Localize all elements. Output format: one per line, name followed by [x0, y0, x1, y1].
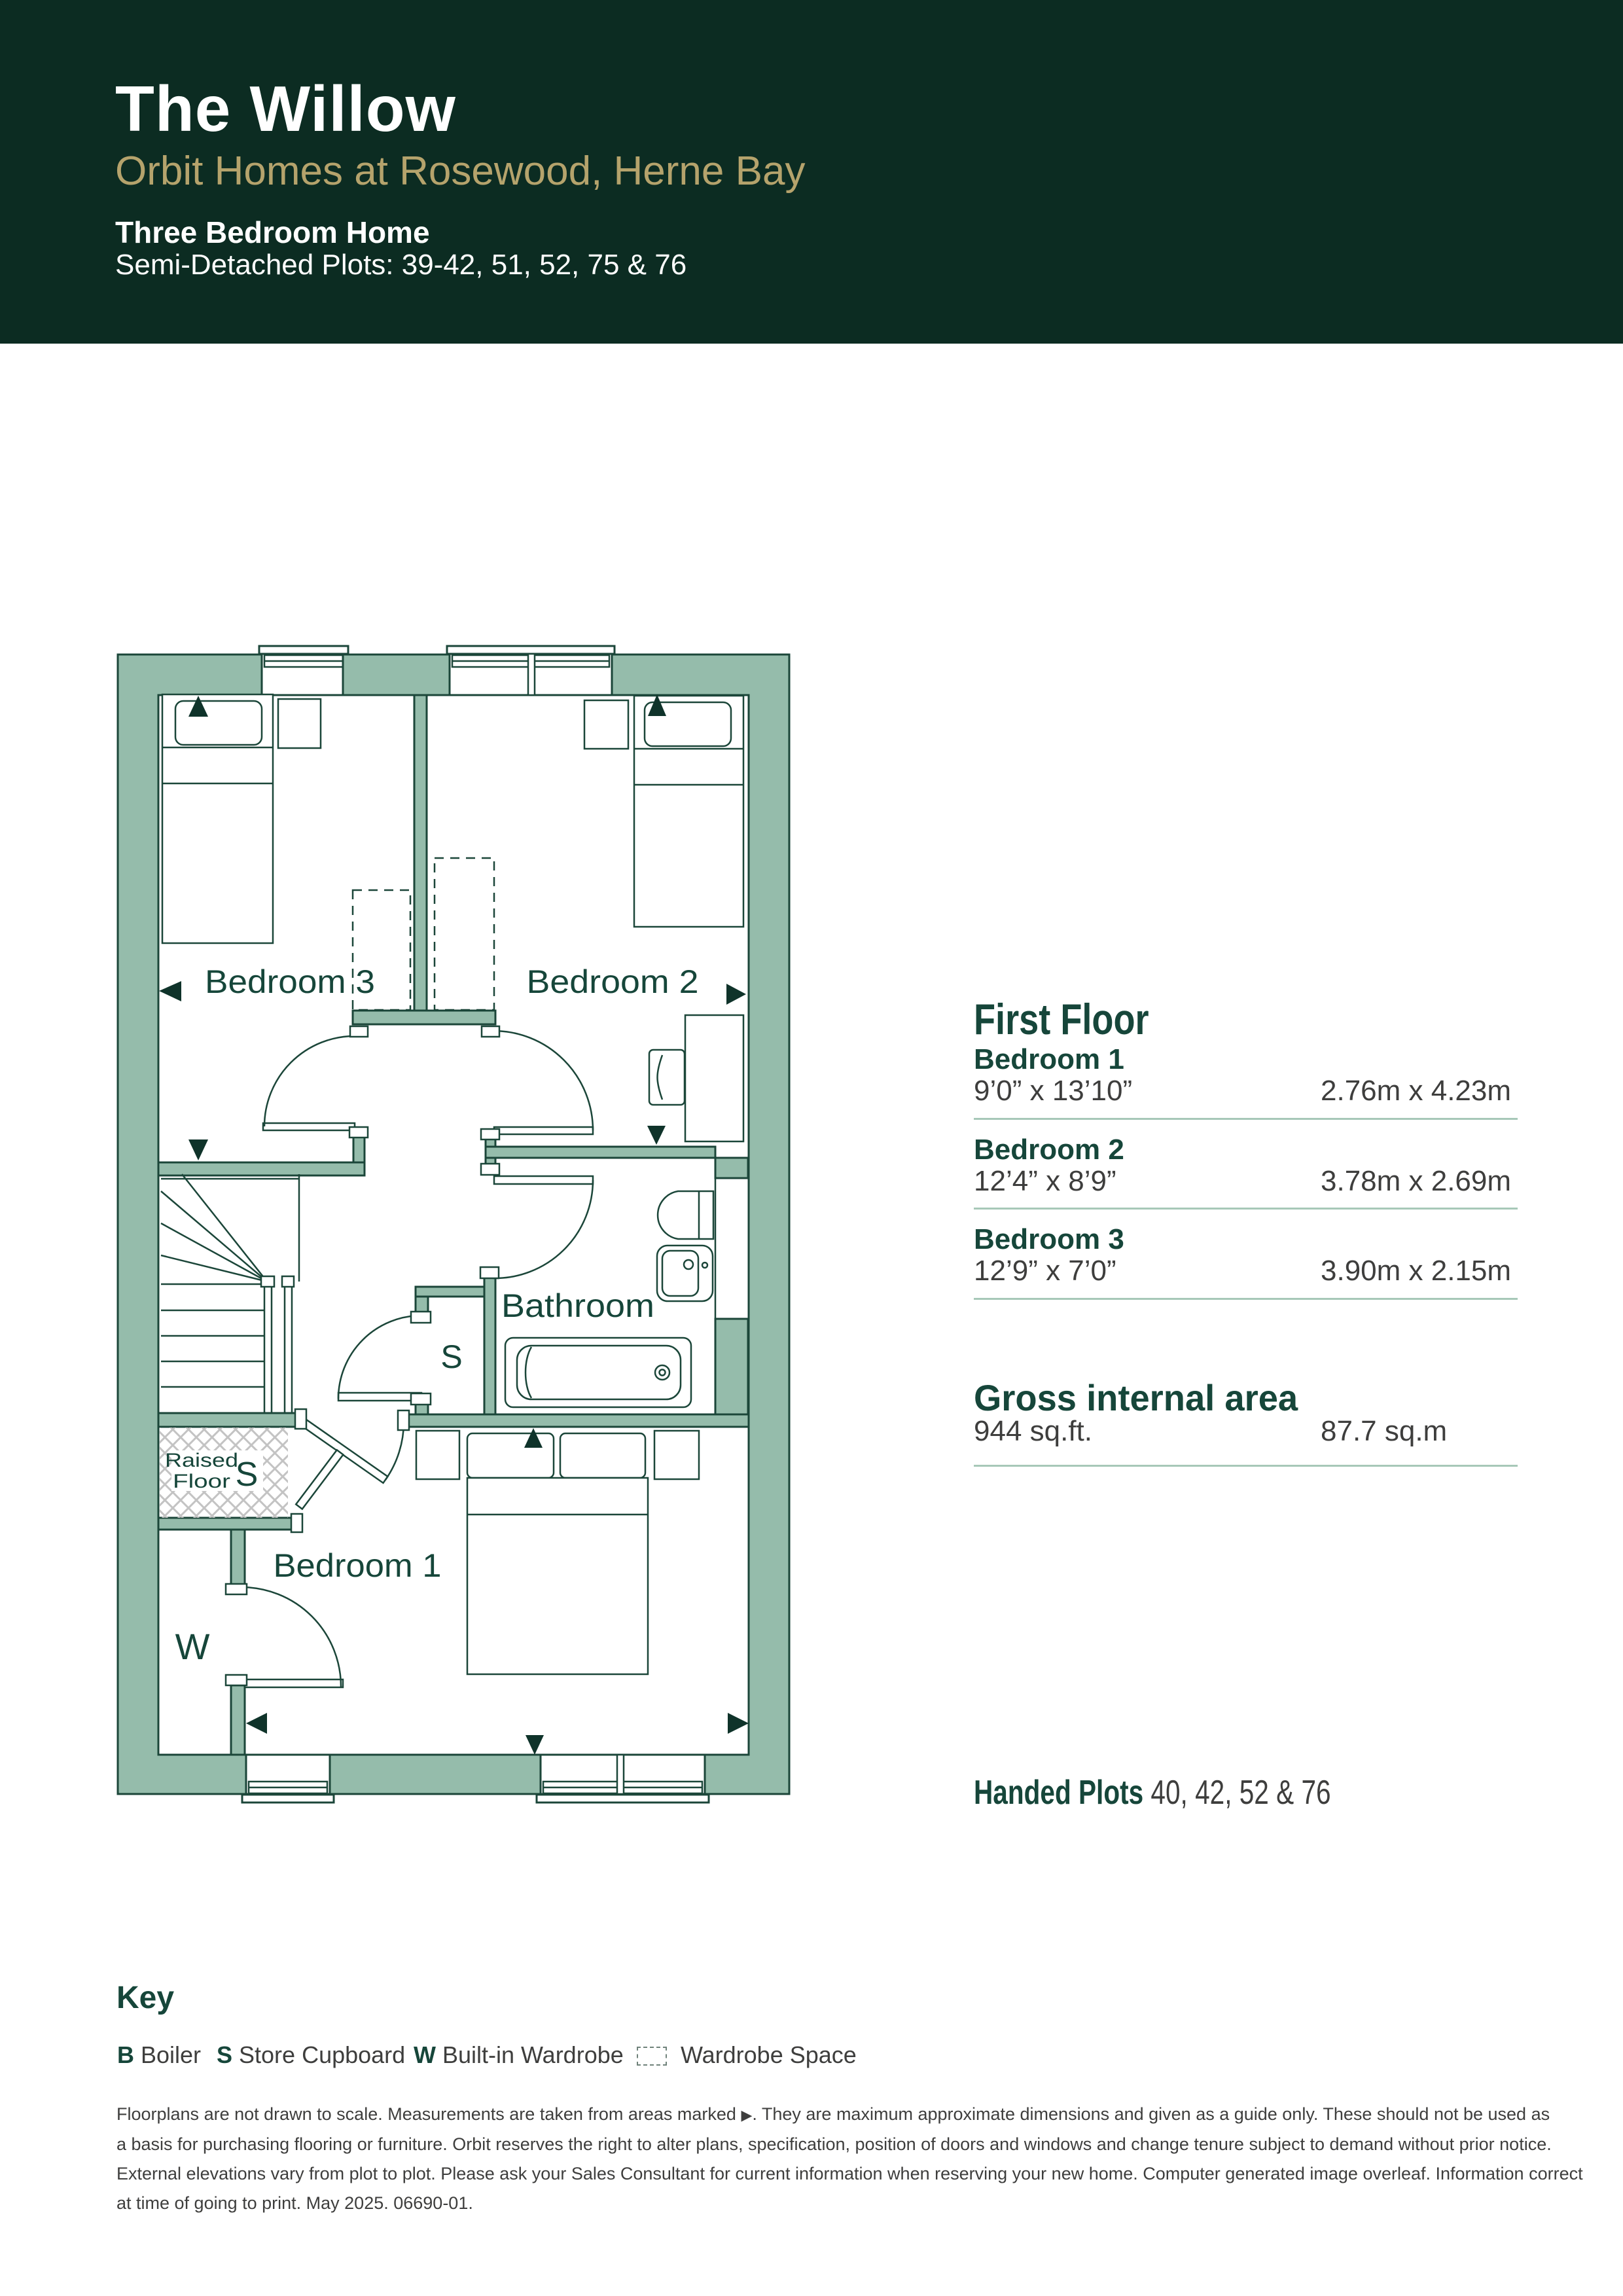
svg-text:S: S [440, 1338, 462, 1375]
svg-text:Bedroom 1: Bedroom 1 [274, 1547, 442, 1584]
svg-text:Floor: Floor [173, 1471, 230, 1492]
svg-text:Bathroom: Bathroom [501, 1287, 654, 1324]
svg-text:W: W [175, 1626, 210, 1667]
svg-text:Bedroom 2: Bedroom 2 [527, 963, 699, 1000]
svg-text:Bedroom 3: Bedroom 3 [205, 963, 375, 1000]
svg-text:S: S [236, 1456, 259, 1494]
svg-text:Raised: Raised [165, 1450, 238, 1471]
